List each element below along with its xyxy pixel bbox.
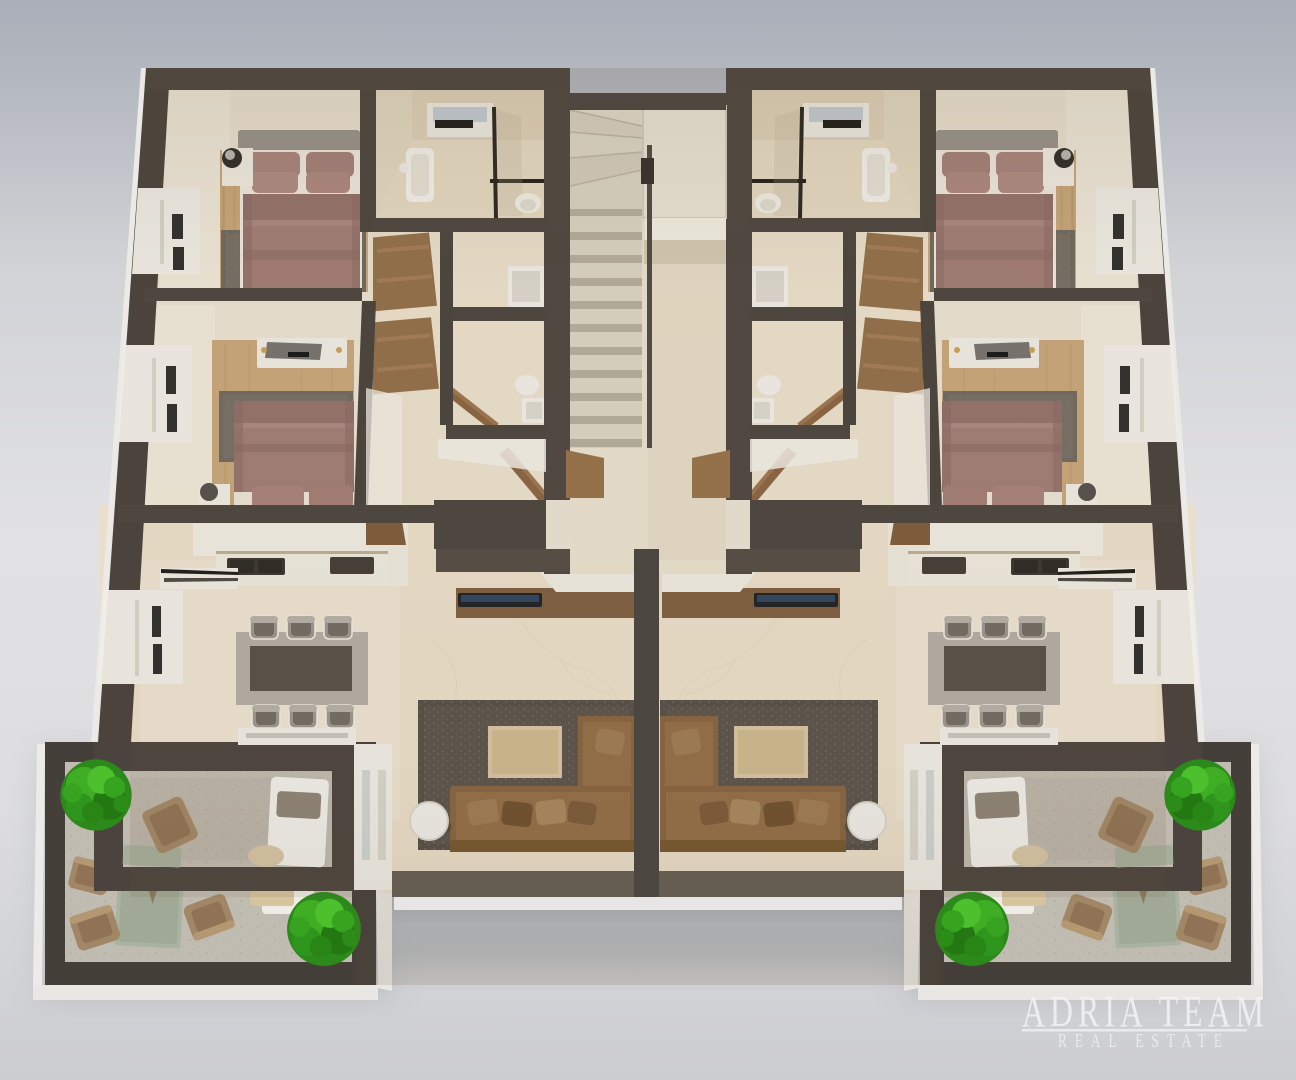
svg-text:REAL ESTATE: REAL ESTATE [1058,1030,1230,1052]
svg-text:ADRIA TEAM: ADRIA TEAM [1022,987,1269,1036]
